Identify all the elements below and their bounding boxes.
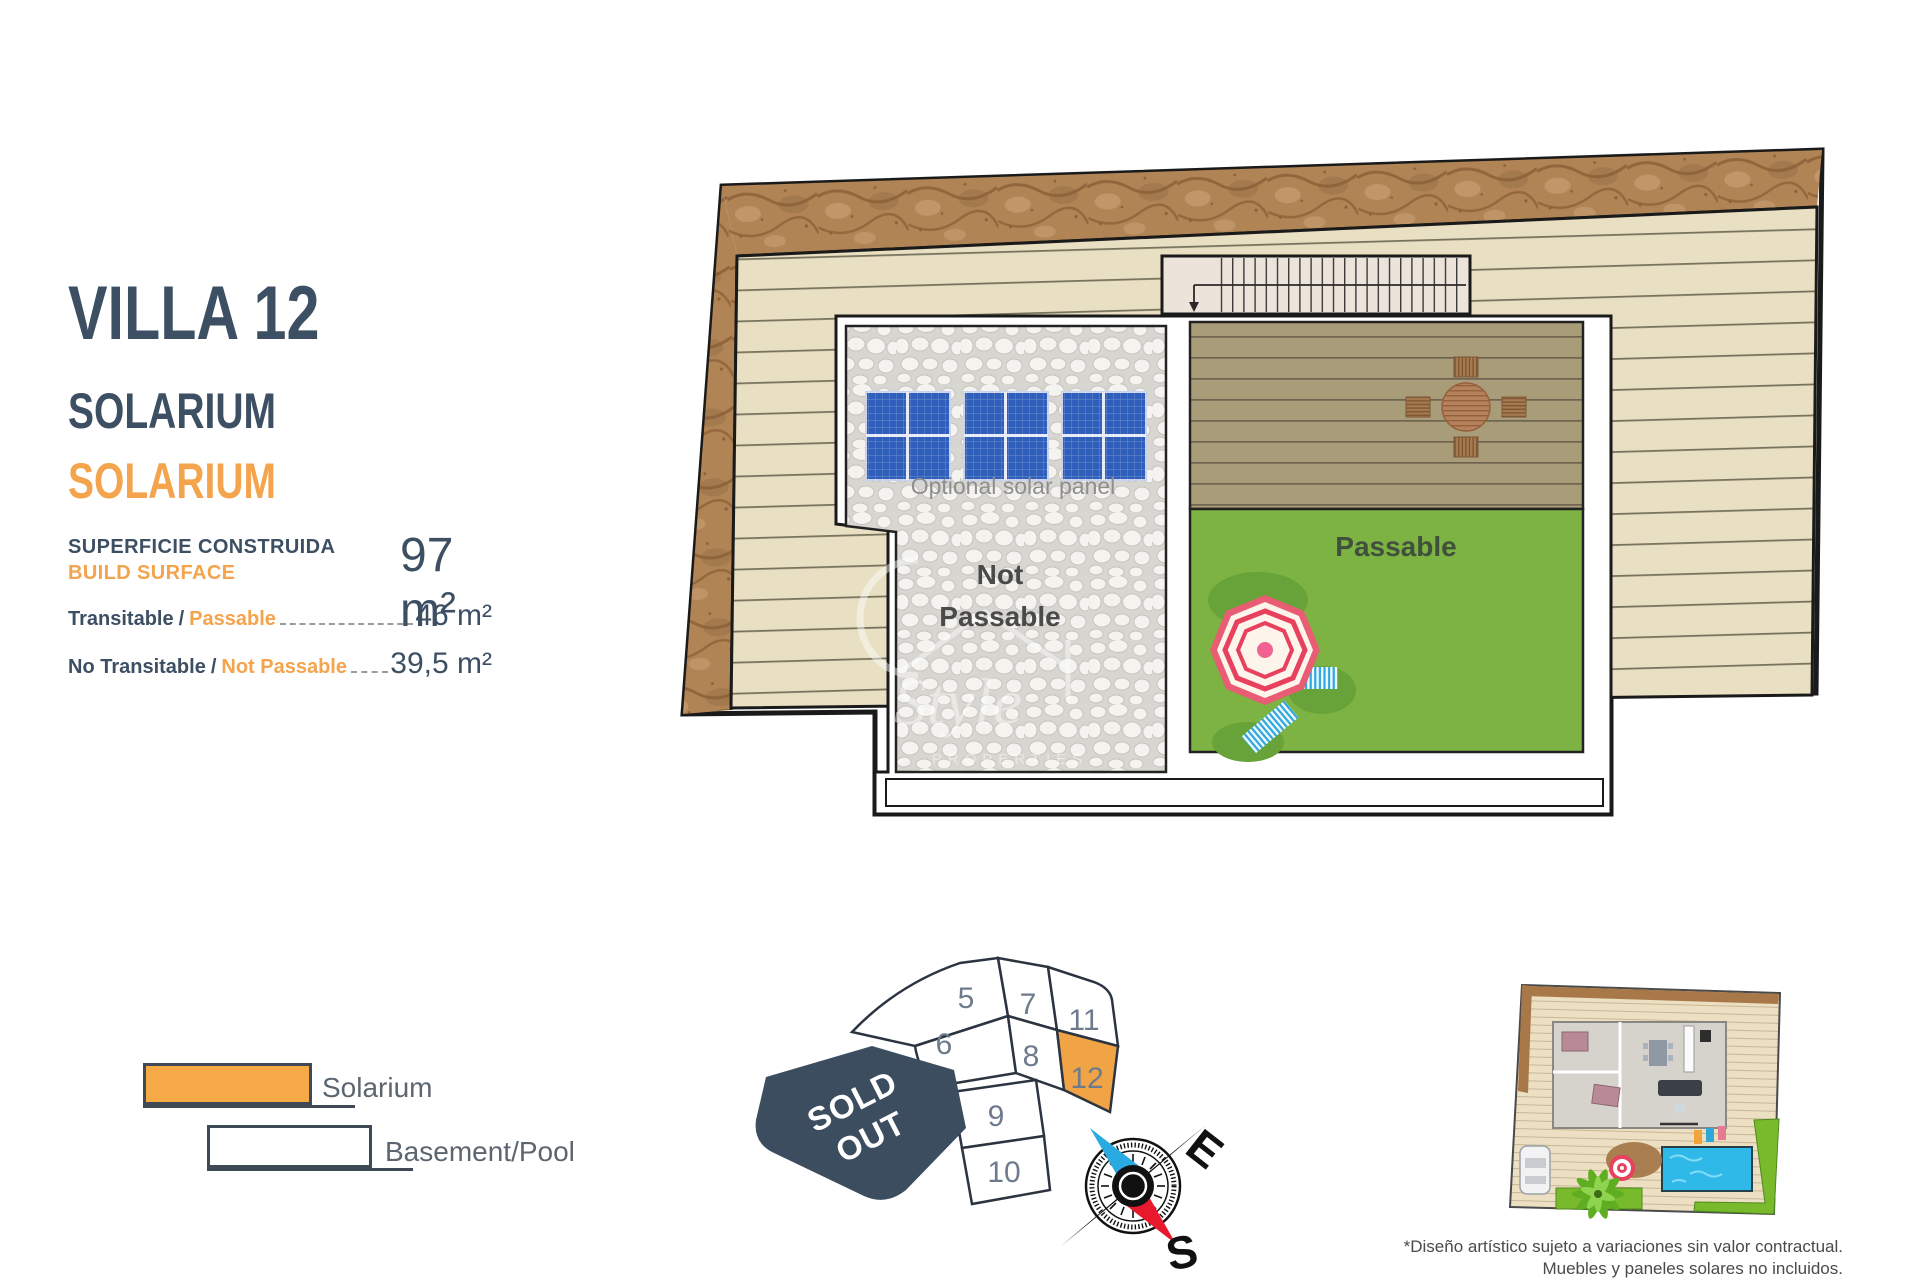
legend-underline bbox=[143, 1105, 355, 1108]
parasol bbox=[1210, 595, 1320, 705]
solar-panel-label: Optional solar panel bbox=[911, 473, 1116, 499]
solarium-plan: Style PROPERTIES bbox=[683, 150, 1822, 814]
plot-number-6: 6 bbox=[936, 1028, 953, 1061]
mini-villa-plan bbox=[1510, 985, 1780, 1221]
passable-label: Passable bbox=[1335, 531, 1456, 562]
solar-panel-2 bbox=[964, 392, 1048, 480]
not-passable-label-line2: Passable bbox=[939, 601, 1060, 632]
surface-row-separator: / bbox=[211, 656, 217, 679]
legend-swatch-basement-pool bbox=[207, 1125, 372, 1168]
surface-row-label-es: No Transitable bbox=[68, 656, 206, 679]
mini-bed-1 bbox=[1562, 1032, 1588, 1051]
solar-panel-1 bbox=[866, 392, 950, 480]
svg-text:Style: Style bbox=[894, 666, 1022, 739]
legend-label-basement-pool: Basement/Pool bbox=[385, 1136, 575, 1168]
not-passable-label-line1: Not bbox=[977, 559, 1024, 590]
mini-lounger-3 bbox=[1718, 1126, 1726, 1140]
mini-lounger-2 bbox=[1706, 1128, 1714, 1142]
surface-row-label-es: Transitable bbox=[68, 608, 174, 631]
plot-number-5: 5 bbox=[958, 982, 975, 1015]
roof-border-left bbox=[683, 186, 737, 714]
mini-kitchen-island bbox=[1684, 1026, 1694, 1072]
stairs bbox=[1162, 256, 1470, 314]
legend-underline bbox=[207, 1168, 413, 1171]
svg-text:PROPERTIES: PROPERTIES bbox=[932, 751, 1088, 768]
compass-east-label: E bbox=[1177, 1119, 1233, 1179]
disclaimer: *Diseño artístico sujeto a variaciones s… bbox=[1404, 1236, 1843, 1280]
build-surface-total: 97 m² bbox=[400, 528, 508, 638]
disclaimer-line1: *Diseño artístico sujeto a variaciones s… bbox=[1404, 1236, 1843, 1258]
brochure-page: Style PROPERTIES bbox=[0, 0, 1920, 1280]
surface-row-label-en: Passable bbox=[189, 608, 276, 631]
mini-car bbox=[1520, 1146, 1550, 1194]
plot-number-7: 7 bbox=[1020, 988, 1037, 1021]
plot-number-8: 8 bbox=[1023, 1040, 1040, 1073]
site-plan bbox=[756, 958, 1118, 1204]
surface-row-value: 39,5 m² bbox=[390, 647, 492, 681]
mini-pool bbox=[1662, 1147, 1752, 1191]
bottom-ledge-detail bbox=[886, 779, 1603, 806]
mini-umbrella bbox=[1609, 1155, 1635, 1181]
surface-row-not-passable: No Transitable / Not Passable 39,5 m² bbox=[68, 647, 492, 681]
compass-south-label: S bbox=[1161, 1224, 1202, 1280]
mini-sofa bbox=[1658, 1080, 1702, 1096]
info-panel: VILLA 12 SOLARIUM SOLARIUM SUPERFICIE CO… bbox=[68, 276, 508, 681]
subtitle-accent: SOLARIUM bbox=[68, 452, 411, 510]
mini-appliance bbox=[1700, 1030, 1711, 1042]
leader-dots bbox=[280, 623, 413, 625]
disclaimer-line2: Muebles y paneles solares no incluidos. bbox=[1404, 1258, 1843, 1280]
subtitle-primary: SOLARIUM bbox=[68, 382, 411, 440]
plot-number-10: 10 bbox=[987, 1156, 1020, 1189]
plot-number-11: 11 bbox=[1068, 1004, 1099, 1037]
mini-bed-2 bbox=[1592, 1084, 1620, 1106]
page-title: VILLA 12 bbox=[68, 276, 411, 352]
surface-row-separator: / bbox=[179, 608, 185, 631]
solar-panels bbox=[866, 392, 1146, 480]
solar-panel-3 bbox=[1062, 392, 1146, 480]
legend-label-solarium: Solarium bbox=[322, 1072, 432, 1104]
mini-dining-table bbox=[1649, 1040, 1667, 1066]
compass-rose: E S bbox=[1060, 1119, 1233, 1280]
build-surface-block: SUPERFICIE CONSTRUIDA BUILD SURFACE 97 m… bbox=[68, 536, 508, 585]
plot-number-12: 12 bbox=[1070, 1062, 1103, 1095]
legend-swatch-solarium bbox=[143, 1063, 312, 1105]
mini-lounger-1 bbox=[1694, 1130, 1702, 1144]
plot-number-9: 9 bbox=[988, 1100, 1005, 1133]
leader-dots bbox=[351, 671, 388, 673]
surface-row-label-en: Not Passable bbox=[221, 656, 347, 679]
